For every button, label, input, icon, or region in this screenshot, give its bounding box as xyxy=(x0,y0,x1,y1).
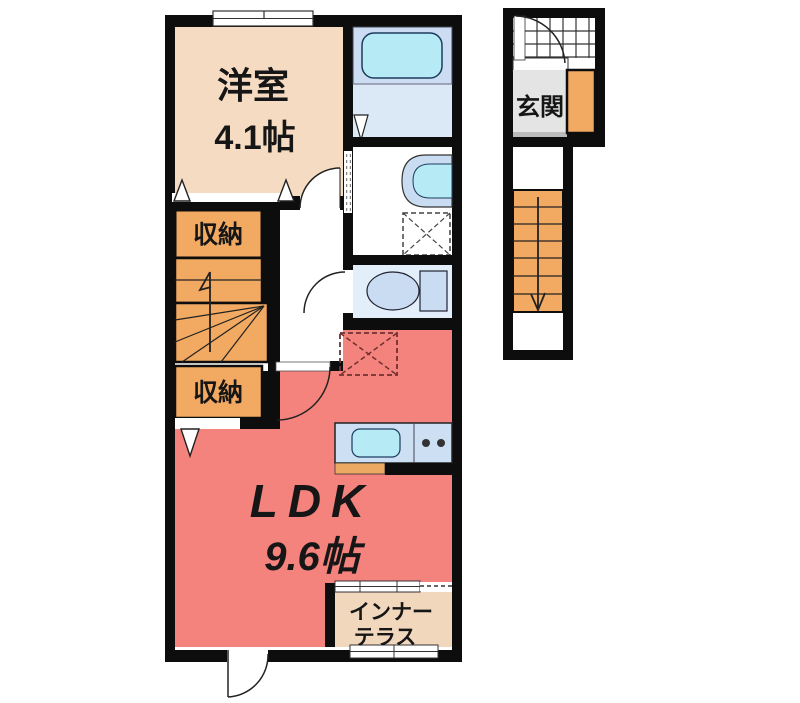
window xyxy=(213,11,313,26)
wall xyxy=(343,255,453,265)
inner-terrace-label-line2: テラス xyxy=(354,626,417,649)
toilet-room xyxy=(343,265,452,318)
entrance-staircase xyxy=(513,190,563,312)
toilet xyxy=(367,271,447,311)
genkan-label: 玄関 xyxy=(516,93,564,121)
floor-plan-page: 洋室 4.1帖 収納 収納 LDK 9.6帖 インナー テラス xyxy=(0,0,800,703)
stove-burner-icon xyxy=(437,439,445,447)
storage-lower-label: 収納 xyxy=(193,378,243,407)
wall xyxy=(268,303,280,371)
ldk-label: LDK xyxy=(250,475,375,527)
washbasin-bowl xyxy=(413,164,452,198)
kitchen-sink xyxy=(352,429,400,457)
toilet-door-opening xyxy=(343,270,353,313)
wall xyxy=(330,361,343,371)
kitchen-counter xyxy=(335,423,452,475)
wall xyxy=(343,318,453,330)
stove-burner-icon xyxy=(422,439,430,447)
genkan-step xyxy=(513,132,567,137)
ldk-bottom-door xyxy=(227,650,268,697)
counter-wall xyxy=(385,463,452,475)
main-unit: 洋室 4.1帖 収納 収納 LDK 9.6帖 インナー テラス xyxy=(165,11,462,697)
counter-edge xyxy=(335,463,385,474)
wall xyxy=(343,27,353,147)
ldk-size: 9.6帖 xyxy=(264,535,366,579)
entrance-section: 玄関 xyxy=(503,8,605,360)
western-room-label: 洋室 xyxy=(217,65,289,106)
wall xyxy=(262,210,280,303)
bathroom xyxy=(353,27,452,140)
inner-terrace-label-line1: インナー xyxy=(349,601,433,624)
western-room xyxy=(175,27,343,196)
bathtub xyxy=(362,33,442,78)
floor-plan-canvas: 洋室 4.1帖 収納 収納 LDK 9.6帖 インナー テラス xyxy=(0,0,800,703)
wall xyxy=(563,133,605,147)
wall xyxy=(325,583,335,647)
window xyxy=(335,581,452,592)
wall xyxy=(240,418,280,429)
shoe-cabinet xyxy=(567,70,595,133)
western-room-size: 4.1帖 xyxy=(214,119,295,157)
wall xyxy=(353,137,452,147)
storage-upper-label: 収納 xyxy=(193,220,243,249)
